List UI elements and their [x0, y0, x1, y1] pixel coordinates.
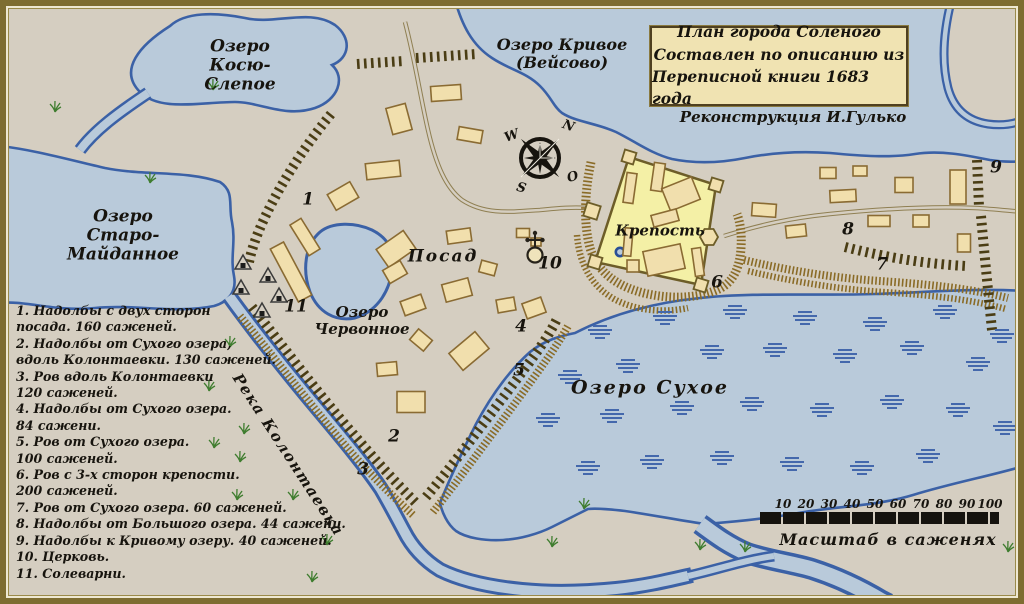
salt-square [277, 296, 282, 301]
house [830, 189, 857, 202]
house [442, 278, 473, 302]
title-box: План города Соленого Составлен по описан… [650, 26, 908, 106]
title-line-2: Составлен по описанию из [654, 44, 905, 66]
palisade-8-east [845, 247, 966, 266]
house [958, 234, 971, 252]
house [397, 392, 425, 413]
gate-west [583, 202, 600, 219]
label-marker-5: 5 [513, 361, 525, 380]
scale-bar [760, 512, 1016, 524]
palisade-9-upper [977, 160, 979, 207]
scale-tick-label: 30 [821, 497, 838, 511]
legend-line: 200 саженей. [16, 483, 308, 499]
salt-works-symbol [235, 255, 251, 269]
scale-tick-label: 90 [959, 497, 976, 511]
house [376, 362, 397, 377]
house [868, 216, 890, 227]
house [446, 228, 472, 244]
house [496, 297, 516, 313]
legend: 1. Надолбы с двух сторонпосада. 160 саже… [16, 303, 308, 582]
scale-tick-label: 80 [936, 497, 953, 511]
legend-line: 8. Надолбы от Большого озера. 44 сажени. [16, 516, 308, 532]
label-marker-1: 1 [302, 190, 314, 209]
scale-tick-label: 10 [775, 497, 792, 511]
legend-line: 5. Ров от Сухого озера. [16, 434, 308, 450]
legend-line: 4. Надолбы от Сухого озера. [16, 401, 308, 417]
house [479, 260, 498, 276]
legend-line: 120 саженей. [16, 385, 308, 401]
label-lake-staro: Озеро Старо- Майданное [67, 207, 179, 264]
scale-block: 102030405060708090100 Масштаб в саженях [760, 497, 1016, 549]
house [627, 260, 639, 272]
palisade-top-east [416, 54, 477, 58]
scale-tick-label: 100 [977, 497, 1002, 511]
house [895, 178, 913, 193]
legend-line: 11. Солеварни. [16, 566, 308, 582]
legend-line: 3. Ров вдоль Колонтаевки [16, 369, 308, 385]
legend-line: 7. Ров от Сухого озера. 60 саженей. [16, 500, 308, 516]
label-marker-2: 2 [388, 427, 400, 446]
scale-tick-label: 40 [844, 497, 861, 511]
tower-sw [588, 255, 603, 270]
house [457, 127, 483, 144]
legend-line: 9. Надолбы к Кривому озеру. 40 саженей. [16, 533, 308, 549]
house [752, 203, 777, 218]
house [431, 84, 462, 101]
scale-segment [806, 512, 827, 524]
label-marker-8: 8 [842, 220, 854, 239]
grass-tuft [307, 571, 318, 582]
scale-caption: Масштаб в саженях [760, 530, 1016, 549]
salt-square [239, 288, 244, 293]
label-lake-koso: Озеро Косю- Слепое [204, 37, 275, 94]
label-marker-4: 4 [515, 317, 527, 336]
scale-labels: 102030405060708090100 [760, 497, 1016, 510]
salt-square [266, 276, 271, 281]
house [853, 166, 867, 176]
label-posad: Посад [408, 247, 479, 266]
tower-nw [622, 150, 637, 165]
salt-works-symbol [260, 268, 276, 282]
tower-ne [709, 178, 724, 193]
legend-line: вдоль Колонтаевки. 130 саженей. [16, 352, 308, 368]
scale-segment [898, 512, 919, 524]
salt-square [241, 263, 246, 268]
scale-tick-label: 20 [798, 497, 815, 511]
scale-segment [967, 512, 988, 524]
scale-tick-label: 50 [867, 497, 884, 511]
label-marker-9: 9 [990, 158, 1002, 177]
label-lake-chervonnoe: Озеро Червонное [314, 304, 409, 338]
house [820, 168, 836, 179]
tower-se [694, 278, 709, 293]
historical-town-plan-map: Озеро Косю- СлепоеОзеро Кривое (Вейсово)… [0, 0, 1024, 604]
legend-line: 6. Ров с 3-х сторон крепости. [16, 467, 308, 483]
scale-segment [829, 512, 850, 524]
grass-tuft [50, 101, 61, 112]
house [410, 329, 433, 351]
scale-tick-label: 70 [913, 497, 930, 511]
credit-line: Реконструкция И.Гулько [668, 108, 918, 126]
scale-segment [852, 512, 873, 524]
palisade-top-west [357, 61, 404, 64]
label-marker-10: 10 [538, 254, 562, 273]
house [517, 229, 530, 238]
legend-line: посада. 160 саженей. [16, 319, 308, 335]
channel-nw-water [80, 93, 148, 150]
legend-line: 84 сажени. [16, 418, 308, 434]
grass-tuft [547, 536, 558, 547]
title-line-1: План города Соленого [677, 21, 881, 43]
house [785, 224, 806, 238]
house [365, 160, 400, 179]
scale-segment [875, 512, 896, 524]
house [950, 170, 966, 204]
house [327, 182, 359, 211]
legend-line: 2. Надолбы от Сухого озера, [16, 336, 308, 352]
scale-segment [783, 512, 804, 524]
scale-segment-tail [990, 512, 999, 524]
legend-line: 1. Надолбы с двух сторон [16, 303, 308, 319]
label-marker-6: 6 [711, 273, 723, 292]
title-line-3: Переписной книги 1683 года [652, 66, 906, 111]
house [913, 215, 929, 227]
scale-tick-label: 60 [890, 497, 907, 511]
house [449, 332, 489, 371]
label-krepost: Крепость [615, 223, 705, 240]
label-marker-3: 3 [357, 460, 369, 479]
label-lake-sukhoe: Озеро Сухое [571, 377, 729, 398]
label-lake-krivoe: Озеро Кривое (Вейсово) [497, 36, 628, 72]
scale-segment [944, 512, 965, 524]
house [386, 103, 412, 134]
scale-segment [921, 512, 942, 524]
legend-line: 100 саженей. [16, 451, 308, 467]
legend-line: 10. Церковь. [16, 549, 308, 565]
scale-segment [760, 512, 781, 524]
label-marker-7: 7 [876, 255, 888, 274]
